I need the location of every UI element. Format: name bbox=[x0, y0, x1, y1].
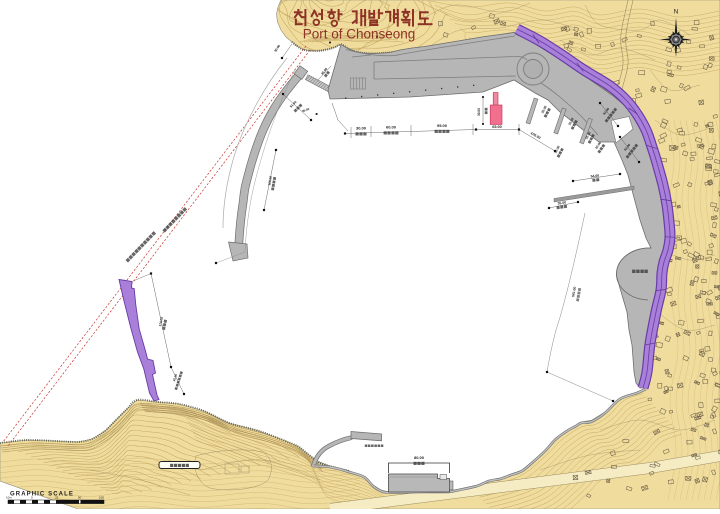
svg-text:60.00: 60.00 bbox=[386, 125, 397, 130]
svg-text:65.00: 65.00 bbox=[492, 125, 502, 129]
svg-text:50: 50 bbox=[78, 496, 82, 500]
svg-text:95.00: 95.00 bbox=[437, 123, 448, 128]
svg-text:100: 100 bbox=[99, 496, 104, 500]
svg-text:Port of Chonseong: Port of Chonseong bbox=[303, 27, 416, 42]
svg-text:25: 25 bbox=[55, 496, 59, 500]
svg-text:N: N bbox=[674, 9, 679, 16]
svg-text:10m: 10m bbox=[6, 496, 12, 500]
svg-text:80.00: 80.00 bbox=[414, 455, 425, 460]
svg-text:GRAPHIC SCALE: GRAPHIC SCALE bbox=[10, 492, 74, 498]
svg-text:30.00: 30.00 bbox=[477, 108, 481, 116]
svg-text:30.00: 30.00 bbox=[356, 126, 367, 131]
